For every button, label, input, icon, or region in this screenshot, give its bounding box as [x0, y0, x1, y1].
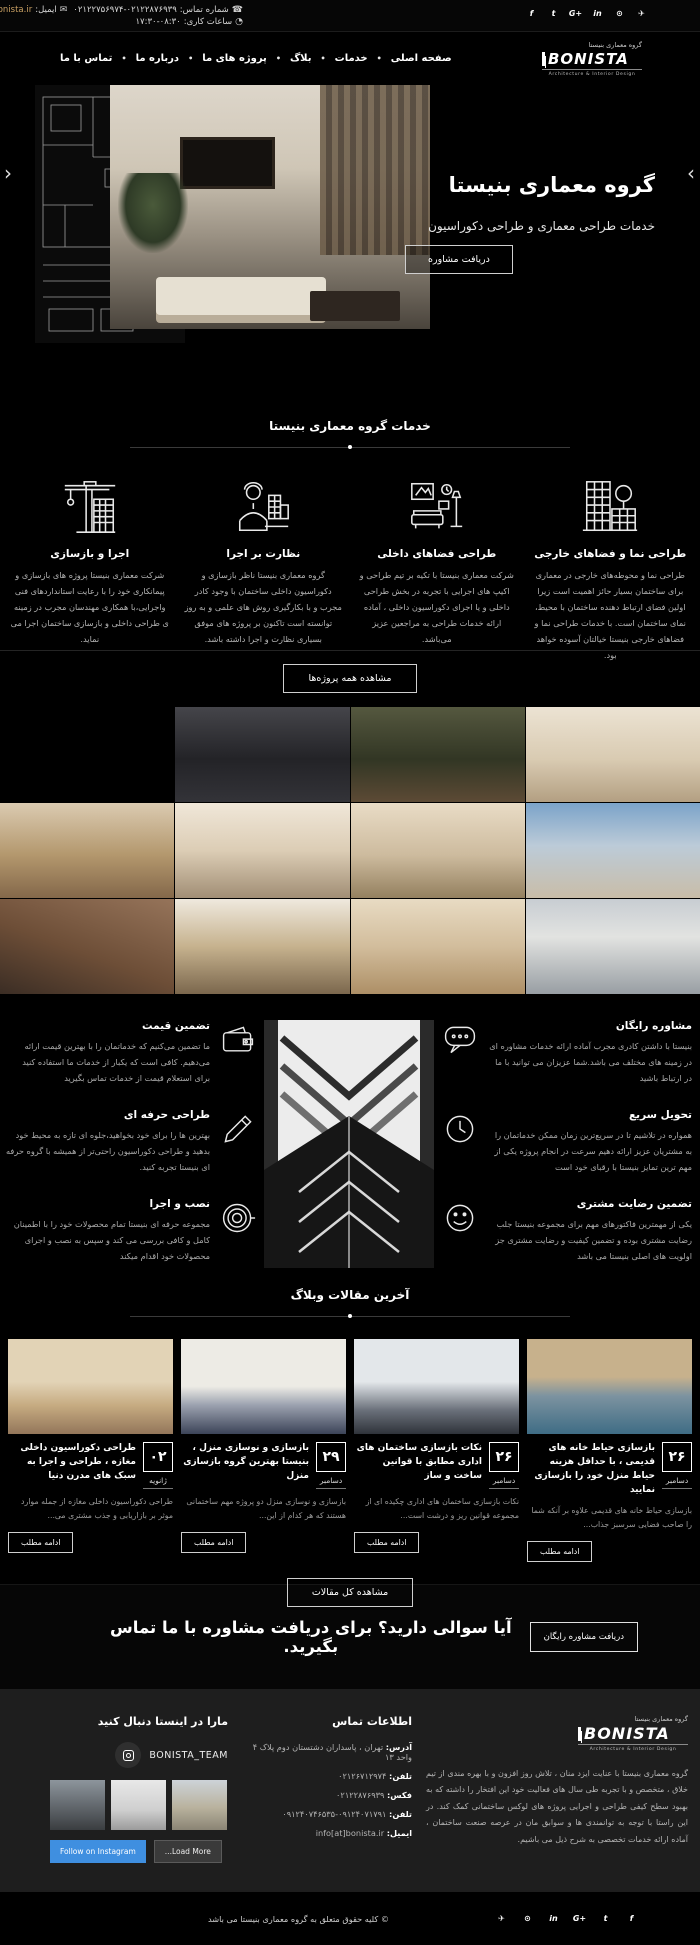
footer-about-column: گروه معماری بنیستا BONISTA Architecture …: [426, 1715, 688, 1892]
footer-about-text: گروه معماری بنیستا با عنایت ایزد منان ، …: [426, 1766, 688, 1848]
carousel-next-arrow[interactable]: ›: [687, 163, 695, 183]
topbar-email[interactable]: ✉ ایمیل: info@bonista.ir: [0, 5, 67, 15]
topbar: ☎ شماره تماس: ۰۲۱۲۲۷۵۶۹۷۴-۰۲۱۲۲۸۷۶۹۳۹ ✉ …: [0, 0, 700, 32]
logo-wordmark: BONISTA: [542, 50, 642, 68]
post-title[interactable]: بازسازی حیاط خانه های قدیمی ، با حداقل ه…: [527, 1442, 655, 1498]
column-icon: [578, 1727, 581, 1741]
section-divider: [130, 447, 570, 448]
blog-post-courtyard: ۲۶ دسامبر بازسازی حیاط خانه های قدیمی ، …: [527, 1339, 692, 1562]
post-image[interactable]: [8, 1339, 173, 1434]
wood-slat-wall: [320, 85, 430, 255]
hero-subtitle: خدمات طراحی معماری و طراحی دکوراسیون: [425, 219, 655, 233]
feature-title: نصب و اجرا: [6, 1198, 210, 1210]
linkedin-icon[interactable]: in: [547, 1912, 560, 1925]
bottom-social-icons: ✈ ⊙ in G+ t f: [495, 1912, 638, 1925]
read-more-button[interactable]: ادامه مطلب: [181, 1532, 246, 1553]
topbar-hours: ◔ ساعات کاری: ۱۷:۳۰-۰۸:۳۰: [135, 17, 243, 27]
logo-tagline: Architecture & Interior Design: [542, 69, 642, 77]
blog-post-shop-decor: ۰۲ ژانویه طراحی دکوراسیون داخلی مغازه ، …: [8, 1339, 173, 1562]
feature-text: بنیستا با داشتن کادری مجرب آماده ارائه خ…: [488, 1039, 692, 1087]
post-image[interactable]: [354, 1339, 519, 1434]
feature-text: مجموعه حرفه ای بنیستا تمام محصولات خود ر…: [6, 1217, 210, 1265]
telegram-icon[interactable]: ✈: [495, 1912, 508, 1925]
google-plus-icon[interactable]: G+: [573, 1912, 586, 1925]
logo-fa-text: گروه معماری بنیستا: [542, 41, 642, 49]
instagram-thumb[interactable]: [172, 1780, 227, 1830]
post-title[interactable]: بازسازی و نوسازی منزل ، بنیستا بهترین گر…: [181, 1442, 309, 1489]
nav-item-about[interactable]: درباره ما: [136, 53, 203, 64]
feature-text: ما تضمین می‌کنیم که خدماتمان را با بهتری…: [6, 1039, 210, 1087]
logo-fa-text: گروه معماری بنیستا: [578, 1715, 688, 1723]
service-text: گروه معماری بنیستا ناظر بازسازی و دکوراس…: [184, 568, 344, 648]
features-center-image: [264, 1020, 434, 1274]
feature-title: تضمین قیمت: [6, 1020, 210, 1032]
post-image[interactable]: [181, 1339, 346, 1434]
free-consultation-button[interactable]: دریافت مشاوره رایگان: [530, 1622, 638, 1652]
post-month: دسامبر: [662, 1472, 692, 1489]
instagram-thumbnails: [50, 1780, 228, 1830]
feature-title: طراحی حرفه ای: [6, 1109, 210, 1121]
contact-phone: تلفن: ۰۲۱۲۶۷۱۲۹۷۴: [242, 1771, 412, 1781]
blog-section: آخرین مقالات وبلاگ ۲۶ دسامبر بازسازی حیا…: [0, 1274, 700, 1584]
topbar-social-icons: f t G+ in ⊙ ✈: [525, 7, 648, 20]
project-luxury-living[interactable]: [351, 899, 525, 994]
linkedin-icon[interactable]: in: [591, 7, 604, 20]
nav-item-blog[interactable]: بلاگ: [290, 53, 335, 64]
email-label: ایمیل:: [35, 5, 57, 15]
service-title: طراحی فضاهای داخلی: [357, 548, 517, 560]
services-heading: خدمات گروه معماری بنیستا: [0, 419, 700, 433]
post-excerpt: بازسازی و نوسازی منزل دو پروژه مهم ساختم…: [181, 1495, 346, 1523]
nav-item-contact[interactable]: تماس با ما: [60, 53, 136, 64]
contact-address: آدرس: تهران ، پاسداران دشتستان دوم پلاک …: [242, 1742, 412, 1762]
feature-satisfaction: تضمین رضایت مشتری یکی از مهمترین فاکتوره…: [442, 1198, 692, 1265]
footer-instagram-column: مارا در اینستا دنبال کنید BONISTA_TEAM F…: [50, 1715, 228, 1892]
contact-label: تلفن:: [389, 1809, 412, 1819]
post-title[interactable]: طراحی دکوراسیون داخلی مغازه ، طراحی و اج…: [8, 1442, 136, 1489]
project-brick-facade[interactable]: [0, 899, 174, 994]
feature-free-consulting: مشاوره رایگان بنیستا با داشتن کادری مجرب…: [442, 1020, 692, 1087]
feature-text: بهترین ها را برای خود بخواهید،جلوه ای تا…: [6, 1128, 210, 1176]
topbar-phone: ☎ شماره تماس: ۰۲۱۲۲۷۵۶۹۷۴-۰۲۱۲۲۸۷۶۹۳۹: [73, 5, 243, 15]
feature-title: تضمین رضایت مشتری: [488, 1198, 692, 1210]
logo-en-text: BONISTA: [584, 1724, 670, 1743]
blog-post-renovation: ۲۹ دسامبر بازسازی و نوسازی منزل ، بنیستا…: [181, 1339, 346, 1562]
get-consultation-button[interactable]: دریافت مشاوره: [405, 245, 513, 274]
services-section: خدمات گروه معماری بنیستا طراحی نما و فضا…: [0, 345, 700, 650]
nav-item-projects[interactable]: پروژه های ما: [202, 53, 290, 64]
facebook-icon[interactable]: f: [525, 7, 538, 20]
plant: [118, 173, 188, 253]
feature-fast-delivery: تحویل سریع همواره در تلاشیم تا در سریع‌ت…: [442, 1109, 692, 1176]
instagram-handle[interactable]: BONISTA_TEAM: [149, 1750, 228, 1761]
clock-icon: [442, 1111, 478, 1147]
service-title: اجرا و بازسازی: [10, 548, 170, 560]
service-renovation: اجرا و بازسازی شرکت معماری بنیستا پروژه …: [10, 476, 170, 664]
tv-panel: [180, 137, 275, 189]
projects-section: مشاهده همه پروژه‌ها: [0, 650, 700, 994]
post-title[interactable]: نکات بازسازی ساختمان های اداری مطابق با …: [354, 1442, 482, 1489]
feature-title: مشاوره رایگان: [488, 1020, 692, 1032]
cta-text: آیا سوالی دارید؟ برای دریافت مشاوره با م…: [62, 1618, 530, 1656]
post-date: ۰۲ ژانویه: [143, 1442, 173, 1489]
follow-on-instagram-button[interactable]: Follow on Instagram: [50, 1840, 146, 1863]
wallet-icon: [220, 1022, 256, 1058]
follow-heading: مارا در اینستا دنبال کنید: [50, 1715, 228, 1728]
footer-logo[interactable]: گروه معماری بنیستا BONISTA Architecture …: [578, 1715, 688, 1752]
post-image[interactable]: [527, 1339, 692, 1434]
post-month: دسامبر: [316, 1472, 346, 1489]
instagram-icon[interactable]: ⊙: [521, 1912, 534, 1925]
twitter-icon[interactable]: t: [599, 1912, 612, 1925]
post-excerpt: نکات بازسازی ساختمان های اداری چکیده ای …: [354, 1495, 519, 1523]
section-divider: [130, 1316, 570, 1317]
project-wooden-kitchen[interactable]: [0, 803, 174, 898]
hero-title: گروه معماری بنیستا: [425, 173, 655, 197]
instagram-account[interactable]: BONISTA_TEAM: [50, 1742, 228, 1768]
logo-en-text: BONISTA: [548, 50, 629, 68]
footer-contact-column: اطلاعات تماس آدرس: تهران ، پاسداران دشتس…: [242, 1715, 412, 1892]
column-icon: [542, 52, 545, 66]
footer: گروه معماری بنیستا BONISTA Architecture …: [0, 1689, 700, 1892]
feature-title: تحویل سریع: [488, 1109, 692, 1121]
post-day: ۰۲: [143, 1442, 173, 1472]
post-excerpt: بازسازی حیاط خانه های قدیمی علاوه بر آنک…: [527, 1504, 692, 1532]
project-ceiling-design[interactable]: [175, 899, 349, 994]
contact-label: آدرس:: [386, 1742, 412, 1752]
post-excerpt: طراحی دکوراسیون داخلی مغازه از جمله موار…: [8, 1495, 173, 1523]
feature-pro-design: طراحی حرفه ای بهترین ها را برای خود بخوا…: [6, 1109, 256, 1176]
navbar: گروه معماری بنیستا BONISTA Architecture …: [0, 32, 700, 85]
service-title: طراحی نما و فضاهای خارجی: [531, 548, 691, 560]
hero-interior-photo: [110, 85, 430, 329]
instagram-thumb[interactable]: [50, 1780, 105, 1830]
phone-value: ۰۲۱۲۲۷۵۶۹۷۴-۰۲۱۲۲۸۷۶۹۳۹: [73, 5, 177, 15]
features-section: مشاوره رایگان بنیستا با داشتن کادری مجرب…: [0, 994, 700, 1274]
service-text: شرکت معماری بنیستا پروژه های بازسازی و پ…: [10, 568, 170, 648]
hero-image: [35, 85, 430, 343]
contact-heading: اطلاعات تماس: [242, 1715, 412, 1728]
project-classic-hallway[interactable]: [526, 707, 700, 802]
project-gym[interactable]: [175, 707, 349, 802]
service-text: شرکت معماری بنیستا با تکیه بر تیم طراحی …: [357, 568, 517, 648]
nav-item-home[interactable]: صفحه اصلی: [391, 53, 452, 64]
post-month: دسامبر: [489, 1472, 519, 1489]
post-day: ۲۶: [489, 1442, 519, 1472]
contact-label: تلفن:: [389, 1771, 412, 1781]
view-all-projects-button[interactable]: مشاهده همه پروژه‌ها: [283, 664, 416, 693]
envelope-icon: ✉: [60, 5, 68, 15]
post-day: ۲۶: [662, 1442, 692, 1472]
read-more-button[interactable]: ادامه مطلب: [527, 1541, 592, 1562]
twitter-icon[interactable]: t: [547, 7, 560, 20]
chat-icon: [442, 1022, 478, 1058]
bottom-bar: ✈ ⊙ in G+ t f © کلیه حقوق متعلق به گروه …: [0, 1892, 700, 1945]
view-all-articles-button[interactable]: مشاهده کل مقالات: [287, 1578, 413, 1607]
project-living-kitchen[interactable]: [175, 803, 349, 898]
project-classic-facade[interactable]: [526, 803, 700, 898]
instagram-icon: [115, 1742, 141, 1768]
service-title: نظارت بر اجرا: [184, 548, 344, 560]
nav-item-services[interactable]: خدمات: [335, 53, 391, 64]
table: [310, 291, 400, 321]
read-more-button[interactable]: ادامه مطلب: [354, 1532, 419, 1553]
post-date: ۲۹ دسامبر: [316, 1442, 346, 1489]
load-more-button[interactable]: ...Load More: [154, 1840, 222, 1863]
service-text: طراحی نما و محوطه‌های خارجی در معماری بر…: [531, 568, 691, 664]
hours-value: ۱۷:۳۰-۰۸:۳۰: [135, 17, 180, 27]
project-empty-cell: [0, 707, 174, 802]
smiley-icon: [442, 1200, 478, 1236]
site-supervisor-icon: [232, 476, 294, 538]
contact-fax: فکس: ۰۲۱۲۲۸۷۶۹۳۹: [242, 1790, 412, 1800]
project-restaurant[interactable]: [351, 707, 525, 802]
logo-wordmark: BONISTA: [578, 1724, 688, 1743]
post-date: ۲۶ دسامبر: [662, 1442, 692, 1498]
post-month: ژانویه: [143, 1472, 173, 1489]
contact-value[interactable]: ۰۲۱۲۶۷۱۲۹۷۴: [338, 1771, 386, 1781]
features-right-column: مشاوره رایگان بنیستا با داشتن کادری مجرب…: [442, 1020, 692, 1274]
contact-mobile: تلفن: ۰۹۱۲۴۰۷۱۷۹۱-۰۹۱۲۴۰۷۴۶۵۳۵: [242, 1809, 412, 1819]
logo-tagline: Architecture & Interior Design: [578, 1744, 688, 1752]
project-white-building[interactable]: [526, 899, 700, 994]
hours-label: ساعات کاری:: [184, 17, 232, 27]
blog-heading: آخرین مقالات وبلاگ: [0, 1288, 700, 1302]
project-dining-room[interactable]: [351, 803, 525, 898]
phone-icon: ☎: [232, 5, 243, 15]
contact-label: فکس:: [387, 1790, 412, 1800]
contact-email: ایمیل: info[at]bonista.ir: [242, 1828, 412, 1838]
hero-slider: گروه معماری بنیستا خدمات طراحی معماری و …: [0, 85, 700, 345]
brand-logo[interactable]: گروه معماری بنیستا BONISTA Architecture …: [542, 41, 642, 77]
pencil-icon: [220, 1111, 256, 1147]
interior-design-icon: [406, 476, 468, 538]
projects-grid: [0, 707, 700, 994]
service-exterior-design: طراحی نما و فضاهای خارجی طراحی نما و محو…: [531, 476, 691, 664]
feature-text: همواره در تلاشیم تا در سریع‌ترین زمان مم…: [488, 1128, 692, 1176]
post-day: ۲۹: [316, 1442, 346, 1472]
instagram-thumb[interactable]: [111, 1780, 166, 1830]
contact-value[interactable]: info[at]bonista.ir: [316, 1828, 384, 1838]
clock-icon: ◔: [235, 17, 243, 27]
feature-install-execute: نصب و اجرا مجموعه حرفه ای بنیستا تمام مح…: [6, 1198, 256, 1265]
facebook-icon[interactable]: f: [625, 1912, 638, 1925]
services-grid: طراحی نما و فضاهای خارجی طراحی نما و محو…: [0, 476, 700, 664]
main-menu: صفحه اصلی خدمات بلاگ پروژه های ما درباره…: [60, 53, 452, 64]
contact-strip: ☎ شماره تماس: ۰۲۱۲۲۷۵۶۹۷۴-۰۲۱۲۲۸۷۶۹۳۹ ✉ …: [18, 4, 243, 28]
sofa: [156, 277, 326, 315]
post-date: ۲۶ دسامبر: [489, 1442, 519, 1489]
hero-caption: گروه معماری بنیستا خدمات طراحی معماری و …: [425, 173, 655, 233]
telegram-icon[interactable]: ✈: [635, 7, 648, 20]
service-supervision: نظارت بر اجرا گروه معماری بنیستا ناظر با…: [184, 476, 344, 664]
phone-label: شماره تماس:: [180, 5, 229, 15]
blog-post-office: ۲۶ دسامبر نکات بازسازی ساختمان های اداری…: [354, 1339, 519, 1562]
building-facade-icon: [579, 476, 641, 538]
carousel-prev-arrow[interactable]: ‹: [4, 163, 12, 183]
read-more-button[interactable]: ادامه مطلب: [8, 1532, 73, 1553]
contact-value: ۰۲۱۲۲۸۷۶۹۳۹: [336, 1790, 384, 1800]
email-value[interactable]: info@bonista.ir: [0, 5, 32, 15]
google-plus-icon[interactable]: G+: [569, 7, 582, 20]
service-interior-design: طراحی فضاهای داخلی شرکت معماری بنیستا با…: [357, 476, 517, 664]
spiral-target-icon: [220, 1200, 256, 1236]
blog-grid: ۲۶ دسامبر بازسازی حیاط خانه های قدیمی ، …: [0, 1339, 700, 1562]
construction-crane-icon: [59, 476, 121, 538]
copyright-text: © کلیه حقوق متعلق به گروه معماری بنیستا …: [62, 1914, 495, 1924]
contact-label: ایمیل:: [387, 1828, 412, 1838]
feature-text: یکی از مهمترین فاکتورهای مهم برای مجموعه…: [488, 1217, 692, 1265]
contact-value[interactable]: ۰۹۱۲۴۰۷۱۷۹۱-۰۹۱۲۴۰۷۴۶۵۳۵: [282, 1809, 386, 1819]
feature-price-guarantee: تضمین قیمت ما تضمین می‌کنیم که خدماتمان …: [6, 1020, 256, 1087]
instagram-icon[interactable]: ⊙: [613, 7, 626, 20]
features-left-column: تضمین قیمت ما تضمین می‌کنیم که خدماتمان …: [6, 1020, 256, 1274]
